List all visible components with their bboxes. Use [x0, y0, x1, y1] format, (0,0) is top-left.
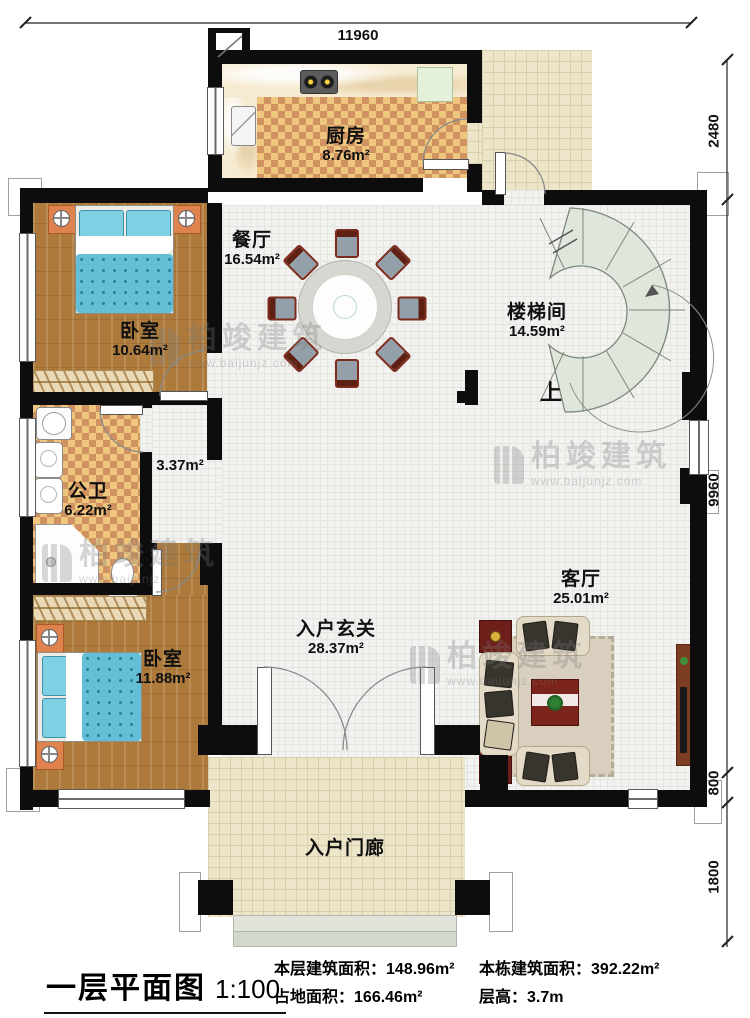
dim-right-2480: 2480 — [706, 114, 723, 147]
wall — [467, 164, 482, 192]
wall — [433, 725, 480, 755]
plant-icon — [547, 695, 563, 711]
dining-table — [298, 260, 392, 354]
dining-label: 餐厅 16.54m² — [224, 230, 280, 268]
window — [207, 87, 224, 155]
bedroom2-label: 卧室 11.88m² — [135, 649, 190, 687]
cushion — [551, 752, 578, 783]
wall — [682, 372, 707, 420]
kitchen-area: 8.76m² — [322, 147, 370, 164]
window — [689, 420, 709, 475]
floor-plan: 11960 2480 9960 800 1800 柏竣建筑 www.baijun… — [0, 0, 750, 1018]
stats-column-2: 本栋建筑面积：392.22m² 层高：3.7m — [479, 956, 660, 1012]
pillow — [42, 656, 68, 696]
bedroom2-area: 11.88m² — [135, 670, 190, 687]
wardrobe — [33, 596, 147, 621]
dim-right-800: 800 — [706, 770, 723, 795]
plan-title: 一层平面图 — [46, 963, 206, 1007]
dining-chair — [398, 297, 427, 321]
cushion — [484, 660, 515, 689]
lamp-icon — [41, 629, 58, 646]
stairwell-area: 14.59m² — [507, 323, 567, 340]
kitchen-door — [423, 159, 469, 170]
wall — [544, 190, 707, 205]
dining-chair — [335, 359, 359, 388]
window — [19, 418, 36, 517]
sofa — [516, 616, 590, 656]
porch-column — [198, 880, 233, 915]
stat-floor-area: 本层建筑面积：148.96m² — [274, 956, 455, 984]
porch-floor — [208, 757, 465, 917]
foyer-area: 28.37m² — [296, 640, 376, 657]
tv-icon — [680, 687, 687, 753]
stairwell-name: 楼梯间 — [507, 302, 567, 323]
dining-area: 16.54m² — [224, 251, 280, 268]
coffee-table — [531, 679, 579, 726]
shower-drain-icon — [46, 557, 56, 567]
living-label: 客厅 25.01m² — [553, 569, 609, 607]
foyer-name: 入户玄关 — [296, 619, 376, 640]
pillow — [126, 210, 171, 238]
sink-basin — [42, 412, 66, 435]
washer — [34, 478, 63, 514]
kitchen-name: 厨房 — [322, 126, 370, 147]
dining-chair — [335, 229, 359, 258]
porch-side-outline — [489, 872, 513, 932]
lamp-icon — [41, 746, 58, 763]
hall-floor — [222, 205, 690, 790]
wall — [187, 790, 210, 807]
corridor-area: 3.37m² — [156, 457, 204, 474]
stat-footprint-area: 占地面积：166.46m² — [274, 984, 455, 1012]
kitchen-label: 厨房 8.76m² — [322, 126, 370, 164]
terrace-door — [495, 152, 506, 195]
nightstand — [36, 624, 64, 653]
bedroom1-name: 卧室 — [112, 321, 168, 342]
living-name: 客厅 — [553, 569, 609, 590]
stairs-up-label: 上 — [540, 375, 562, 407]
wall — [207, 398, 222, 460]
bathroom-name: 公卫 — [64, 481, 112, 502]
plan-scale: 1:100 — [215, 974, 280, 1005]
table-decor-icon — [490, 631, 501, 642]
bedroom1-label: 卧室 10.64m² — [112, 321, 168, 359]
wall — [208, 178, 423, 192]
foyer-label: 入户玄关 28.37m² — [296, 619, 376, 657]
sofa — [516, 746, 590, 786]
entry-door-right — [420, 667, 435, 755]
stat-floor-height: 层高：3.7m — [479, 984, 660, 1012]
stairwell-label: 楼梯间 14.59m² — [507, 302, 567, 340]
living-area: 25.01m² — [553, 590, 609, 607]
dining-name: 餐厅 — [224, 230, 280, 251]
nightstand — [173, 205, 201, 234]
porch-step — [233, 931, 457, 947]
bed-blanket — [82, 653, 141, 741]
washer-drum — [40, 450, 57, 467]
wall — [457, 391, 478, 403]
title-block: 一层平面图 1:100 — [44, 963, 286, 1014]
cushion — [551, 621, 578, 652]
bedroom2-door — [152, 549, 162, 596]
window — [58, 789, 185, 809]
stats-column-1: 本层建筑面积：148.96m² 占地面积：166.46m² — [274, 956, 455, 1012]
bed-blanket — [76, 254, 173, 313]
bed — [75, 205, 174, 314]
bathroom-area: 6.22m² — [64, 502, 112, 519]
door-gap-floor — [504, 190, 544, 205]
wall — [690, 473, 707, 807]
entry-door-left — [257, 667, 272, 755]
bathroom-sink — [36, 407, 72, 440]
wall — [200, 543, 222, 585]
sofa — [479, 652, 519, 756]
cushion — [522, 751, 550, 782]
porch-label: 入户门廊 — [305, 838, 385, 859]
nightstand — [36, 741, 64, 770]
wall — [208, 50, 482, 64]
pillow — [42, 698, 68, 738]
dim-right-9960: 9960 — [706, 473, 723, 506]
bathroom-door — [100, 405, 143, 415]
wall — [467, 50, 482, 123]
window — [19, 640, 36, 767]
wall — [140, 452, 152, 595]
dim-top: 11960 — [326, 27, 390, 44]
wall — [20, 188, 208, 203]
gas-stove — [300, 70, 338, 94]
bed — [37, 652, 142, 742]
washer — [34, 442, 63, 478]
plant-icon — [680, 657, 688, 665]
bedroom2-name: 卧室 — [135, 649, 190, 670]
door-gap-floor — [207, 352, 222, 398]
bedroom1-area: 10.64m² — [112, 342, 168, 359]
cushion — [522, 620, 550, 651]
kitchen-sink — [231, 106, 256, 146]
corridor-label: 3.37m² — [156, 457, 204, 474]
washer-drum — [40, 486, 57, 503]
lazy-susan — [333, 295, 357, 319]
stat-building-area: 本栋建筑面积：392.22m² — [479, 956, 660, 984]
window — [628, 789, 658, 809]
wall — [20, 583, 152, 595]
wall — [465, 790, 517, 807]
bathroom-label: 公卫 6.22m² — [64, 481, 112, 519]
wall — [198, 725, 257, 755]
fridge — [417, 67, 453, 102]
lamp-icon — [53, 210, 70, 227]
lamp-icon — [178, 210, 195, 227]
door-gap-floor — [467, 119, 482, 164]
dining-chair — [268, 297, 297, 321]
cushion — [484, 690, 514, 718]
corner-table — [479, 620, 512, 653]
window — [19, 233, 36, 362]
nightstand — [48, 205, 76, 234]
bedroom1-door — [160, 391, 208, 401]
wall — [207, 203, 222, 353]
wall — [208, 585, 222, 727]
porch-column — [455, 880, 490, 915]
dim-right-1800: 1800 — [706, 860, 723, 893]
pillow — [79, 210, 124, 238]
cushion — [483, 719, 515, 751]
porch-name: 入户门廊 — [305, 838, 385, 859]
